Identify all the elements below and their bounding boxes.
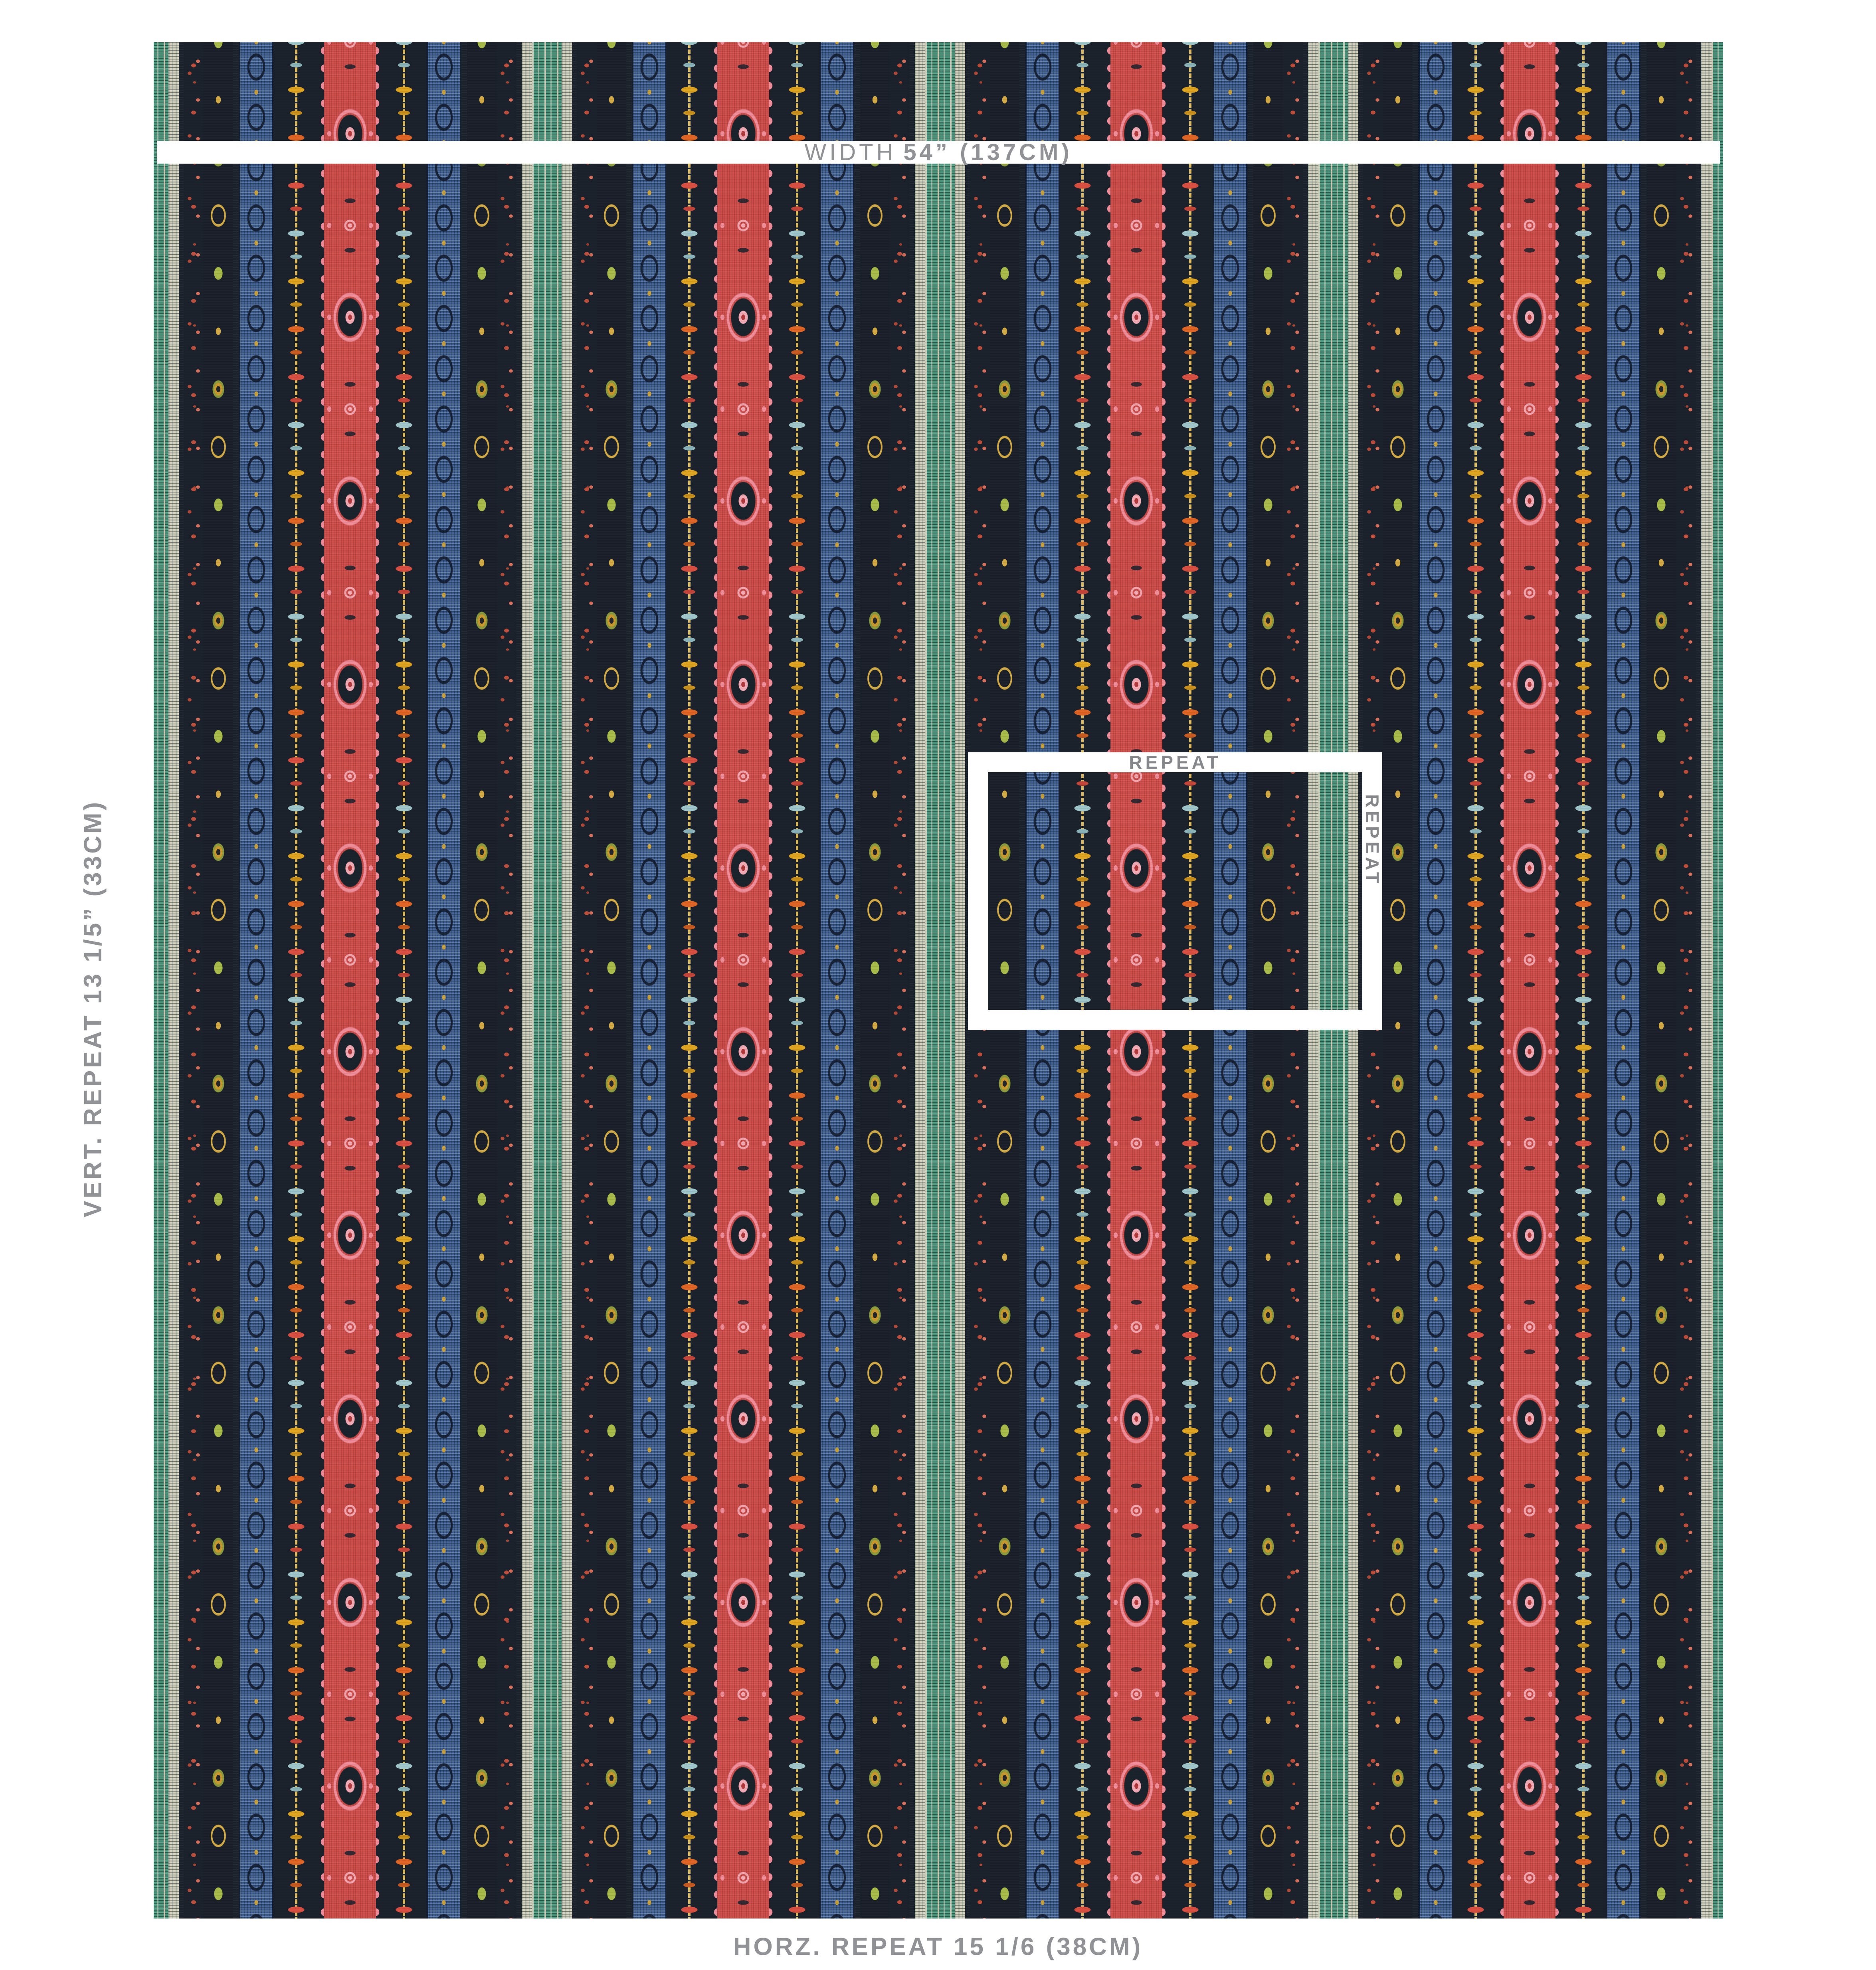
stripe-diamond-medallion-column <box>860 42 890 1919</box>
stripe-red-medallion-band <box>712 42 775 1919</box>
stripe-diamond-medallion-column <box>1383 42 1413 1919</box>
stripe-dot-cluster-column <box>1676 42 1696 1919</box>
width-measurement-bar: WIDTH 54” (137CM) <box>157 141 1720 164</box>
fabric-swatch: WIDTH 54” (137CM) REPEAT REPEAT <box>154 42 1723 1919</box>
stripe-dot-cluster-column <box>890 42 910 1919</box>
repeat-frame: REPEAT REPEAT <box>968 752 1382 1030</box>
stripe-navy-gap <box>572 42 577 1919</box>
fabric-repeat-unit <box>1701 42 1723 1919</box>
stripe-blue-ikat-band <box>1418 42 1453 1919</box>
stripe-navy-gap <box>516 42 522 1919</box>
vertical-repeat-label: VERT. REPEAT 13 1/5” (33CM) <box>79 800 107 1217</box>
stripe-navy-gap <box>179 42 184 1919</box>
stripe-red-medallion-band <box>319 42 382 1919</box>
stripe-teal-plaid-band <box>154 42 179 1919</box>
stripe-navy-gap <box>233 42 239 1919</box>
fabric-repeat-unit <box>154 42 522 1919</box>
red-band-medallions <box>1504 42 1555 1919</box>
stripe-teal-plaid-band <box>915 42 965 1919</box>
stripe-floral-sprig-column <box>667 42 712 1919</box>
stripe-cream-rib <box>168 42 179 1919</box>
stripe-teal-plaid-band <box>1701 42 1723 1919</box>
stripe-cream-rib <box>1701 42 1712 1919</box>
stripe-diamond-medallion-column <box>204 42 233 1919</box>
stripe-blue-ikat-band <box>632 42 667 1919</box>
stripe-blue-ikat-band <box>1606 42 1641 1919</box>
stripe-dot-cluster-column <box>184 42 204 1919</box>
stripe-dot-cluster-column <box>577 42 597 1919</box>
width-word: WIDTH <box>804 139 896 166</box>
red-band-medallions <box>324 42 376 1919</box>
stripe-dot-cluster-column <box>497 42 516 1919</box>
repeat-frame-top-label: REPEAT <box>968 752 1382 772</box>
fabric-stripe-row <box>154 42 1723 1919</box>
stripe-floral-sprig-column <box>382 42 426 1919</box>
stripe-teal-rib <box>925 42 955 1919</box>
stripe-cream-rib <box>955 42 965 1919</box>
stripe-navy-gap <box>1696 42 1701 1919</box>
red-band-scallop-edge <box>1498 42 1504 1919</box>
red-band-scallop-edge <box>769 42 775 1919</box>
fabric-measurement-diagram: { "diagram": { "description": "Multicolo… <box>0 0 1876 1970</box>
stripe-navy-gap <box>461 42 467 1919</box>
red-band-scallop-edge <box>712 42 717 1919</box>
stripe-teal-rib <box>1712 42 1723 1919</box>
stripe-floral-sprig-column <box>775 42 819 1919</box>
stripe-red-medallion-band <box>1498 42 1561 1919</box>
stripe-blue-ikat-band <box>239 42 274 1919</box>
stripe-cream-rib <box>522 42 532 1919</box>
repeat-frame-right-label: REPEAT <box>1362 794 1382 886</box>
stripe-diamond-medallion-column <box>597 42 626 1919</box>
stripe-teal-plaid-band <box>522 42 572 1919</box>
stripe-navy-gap <box>910 42 915 1919</box>
stripe-floral-sprig-column <box>274 42 319 1919</box>
red-band-scallop-edge <box>1555 42 1561 1919</box>
red-band-scallop-edge <box>376 42 382 1919</box>
stripe-blue-ikat-band <box>819 42 855 1919</box>
stripe-diamond-medallion-column <box>467 42 497 1919</box>
width-value: 54” (137CM) <box>903 139 1072 166</box>
red-band-medallions <box>717 42 769 1919</box>
stripe-teal-rib <box>154 42 168 1919</box>
stripe-cream-rib <box>915 42 925 1919</box>
red-band-scallop-edge <box>319 42 324 1919</box>
stripe-navy-gap <box>1641 42 1646 1919</box>
fabric-repeat-unit <box>522 42 915 1919</box>
stripe-blue-ikat-band <box>426 42 461 1919</box>
stripe-diamond-medallion-column <box>1646 42 1676 1919</box>
stripe-navy-gap <box>1413 42 1418 1919</box>
stripe-navy-gap <box>626 42 632 1919</box>
stripe-cream-rib <box>562 42 572 1919</box>
stripe-floral-sprig-column <box>1561 42 1606 1919</box>
stripe-teal-rib <box>532 42 562 1919</box>
horizontal-repeat-label: HORZ. REPEAT 15 1/6 (38CM) <box>733 1933 1143 1961</box>
stripe-floral-sprig-column <box>1453 42 1498 1919</box>
stripe-navy-gap <box>855 42 860 1919</box>
